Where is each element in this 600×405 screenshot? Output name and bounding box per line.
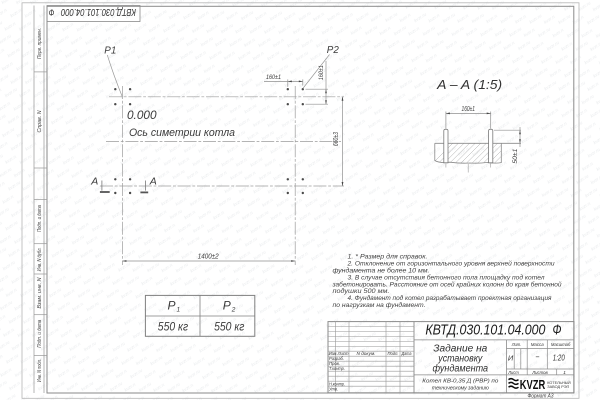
svg-text:Листов: Листов (531, 370, 548, 375)
svg-text:техническому заданию: техническому заданию (432, 386, 490, 392)
svg-text:3. В случае отсутствия бетонно: 3. В случае отсутствия бетонного пола пл… (348, 273, 545, 281)
svg-text:2: 2 (231, 306, 236, 313)
svg-text:Формат А3: Формат А3 (528, 394, 554, 400)
svg-text:Справ. N: Справ. N (37, 110, 43, 132)
svg-text:ЗАВОД РЭП: ЗАВОД РЭП (547, 384, 569, 389)
svg-text:KVZR: KVZR (520, 378, 546, 392)
svg-text:Лист: Лист (507, 370, 518, 375)
svg-text:по нагрузкам на фундамент.: по нагрузкам на фундамент. (333, 301, 426, 309)
svg-text:Подп. и дата: Подп. и дата (37, 205, 43, 232)
svg-text:Инв. N подл.: Инв. N подл. (37, 359, 43, 382)
svg-text:Перв. примен.: Перв. примен. (37, 28, 43, 59)
svg-text:Масса: Масса (531, 342, 544, 347)
svg-text:Масштаб: Масштаб (551, 342, 571, 347)
svg-text:P2: P2 (327, 44, 339, 56)
svg-text:1: 1 (563, 370, 566, 375)
svg-text:P1: P1 (104, 44, 116, 56)
svg-text:50±1: 50±1 (512, 148, 519, 163)
svg-text:забетонировать. Расстояние от: забетонировать. Расстояние от осей крайн… (331, 280, 561, 288)
svg-text:2. Отклонение от горизонтально: 2. Отклонение от горизонтального уровня … (346, 260, 554, 268)
svg-text:Дата: Дата (401, 351, 412, 356)
svg-text:550 кг: 550 кг (158, 321, 189, 333)
svg-text:1. * Размер для справок.: 1. * Размер для справок. (348, 253, 428, 261)
svg-text:Т.контр.: Т.контр. (329, 366, 345, 371)
svg-text:фундамента: фундамента (433, 363, 489, 375)
svg-text:160±1: 160±1 (319, 65, 325, 80)
svg-text:550 кг: 550 кг (214, 321, 245, 333)
svg-text:0.000: 0.000 (127, 108, 157, 122)
svg-text:подушки 500 мм.: подушки 500 мм. (333, 287, 390, 295)
svg-text:A: A (149, 176, 157, 188)
svg-text:160±1: 160±1 (266, 74, 281, 81)
svg-text:Подп.: Подп. (388, 351, 399, 356)
svg-text:Лит.: Лит. (511, 342, 521, 347)
svg-text:Подп. и дата: Подп. и дата (37, 320, 43, 348)
svg-text:Ось симетрии котла: Ось симетрии котла (129, 127, 235, 139)
svg-text:И: И (508, 353, 514, 362)
svg-text:фундамента не более 10 мм.: фундамента не более 10 мм. (333, 267, 430, 275)
svg-text:1: 1 (177, 306, 181, 313)
svg-text:КВТД.030.101.04.000: КВТД.030.101.04.000 (61, 6, 136, 17)
svg-text:A: A (90, 176, 98, 188)
svg-text:660±3: 660±3 (333, 132, 340, 146)
svg-text:A – A (1:5): A – A (1:5) (436, 78, 502, 92)
svg-text:1400±2: 1400±2 (198, 252, 219, 261)
svg-text:Котел КВ-0,35 Д (РВР) по: Котел КВ-0,35 Д (РВР) по (422, 379, 498, 385)
svg-text:N докум.: N докум. (357, 351, 376, 356)
svg-text:1:20: 1:20 (553, 354, 566, 363)
svg-text:P: P (223, 299, 231, 313)
svg-text:160±1: 160±1 (462, 104, 476, 113)
svg-text:КВТД.030.101.04.000: КВТД.030.101.04.000 (425, 322, 546, 339)
svg-text:4. Фундамент под котел разраба: 4. Фундамент под котел разрабатывает про… (348, 294, 553, 302)
svg-text:Утв.: Утв. (329, 386, 338, 391)
svg-text:P: P (168, 299, 176, 313)
svg-text:Инв. N дубл.: Инв. N дубл. (37, 247, 43, 271)
svg-text:Взам. инв. N: Взам. инв. N (37, 277, 43, 308)
svg-text:Ф: Ф (49, 6, 55, 17)
svg-text:Ф: Ф (553, 322, 562, 339)
